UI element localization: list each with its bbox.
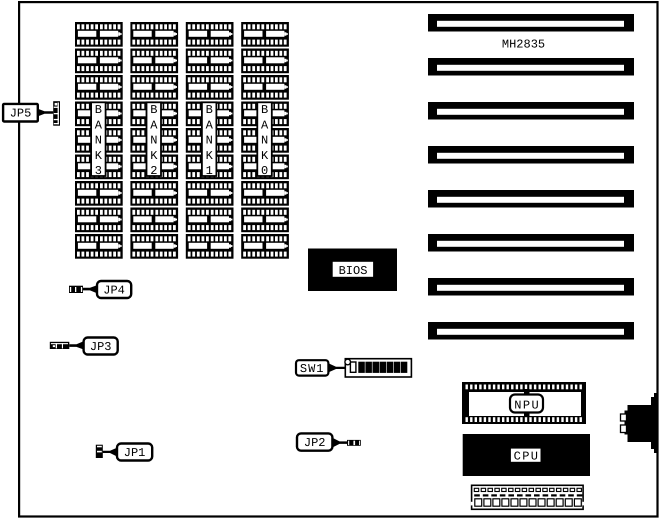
svg-text:BIOS: BIOS [339, 264, 368, 278]
svg-text:N: N [261, 134, 268, 148]
svg-text:N: N [150, 134, 157, 148]
svg-text:B: B [261, 103, 268, 117]
svg-text:3: 3 [95, 164, 102, 178]
svg-text:JP3: JP3 [90, 340, 112, 354]
svg-text:1: 1 [206, 164, 213, 178]
svg-text:SW1: SW1 [300, 362, 325, 376]
svg-text:JP5: JP5 [10, 107, 32, 121]
svg-text:B: B [95, 103, 102, 117]
svg-text:A: A [261, 118, 269, 132]
svg-text:K: K [150, 149, 158, 163]
svg-text:B: B [206, 103, 213, 117]
svg-text:A: A [150, 118, 158, 132]
svg-text:A: A [95, 118, 103, 132]
svg-text:CPU: CPU [514, 449, 540, 463]
svg-text:N: N [95, 134, 102, 148]
svg-text:JP1: JP1 [124, 446, 146, 460]
svg-text:K: K [95, 149, 103, 163]
svg-text:N: N [206, 134, 213, 148]
svg-text:JP2: JP2 [304, 436, 326, 450]
svg-text:2: 2 [150, 164, 157, 178]
svg-text:NPU: NPU [514, 398, 540, 412]
svg-text:K: K [261, 149, 269, 163]
svg-text:0: 0 [261, 164, 268, 178]
svg-text:JP4: JP4 [103, 284, 125, 298]
svg-text:A: A [206, 118, 214, 132]
svg-text:MH2835: MH2835 [502, 38, 545, 52]
svg-text:B: B [150, 103, 157, 117]
svg-text:K: K [206, 149, 214, 163]
